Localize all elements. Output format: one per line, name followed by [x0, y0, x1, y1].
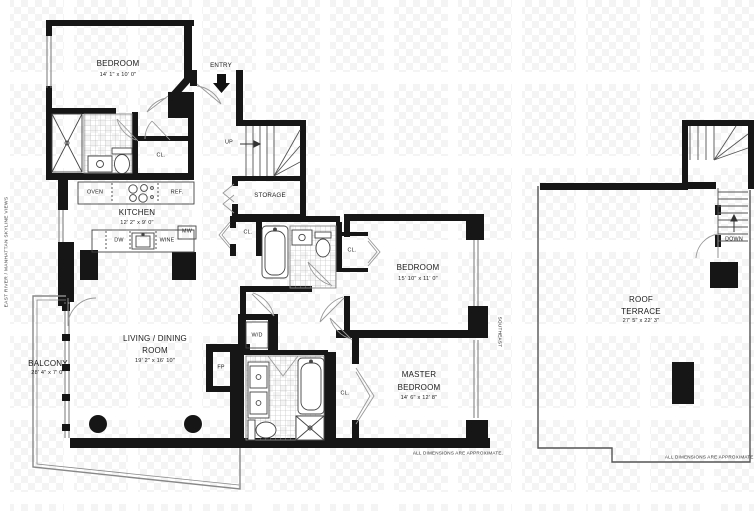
toilet-icon	[248, 420, 276, 440]
living-dining-dims: 19' 2" x 16' 10"	[135, 359, 175, 365]
southeast-label: SOUTHEAST	[497, 317, 502, 348]
entry-label: ENTRY	[210, 63, 232, 69]
fireplace-label: FP	[217, 365, 224, 370]
storage-label: STORAGE	[254, 193, 286, 199]
floor-plan: BEDROOM 14' 1" x 10' 0" ENTRY UP STORAGE…	[0, 0, 754, 511]
kitchen-label: KITCHEN	[119, 209, 156, 217]
bedroom-middle-label: BEDROOM	[397, 264, 440, 272]
chimney-block	[672, 362, 694, 404]
toilet-icon	[315, 232, 331, 257]
entry-arrow-icon	[213, 74, 230, 93]
dimensions-note-main: ALL DIMENSIONS ARE APPROXIMATE.	[413, 452, 503, 457]
master-bedroom-label-2: BEDROOM	[398, 384, 441, 392]
bathtub-icon	[262, 226, 288, 278]
column-dot	[184, 415, 202, 433]
dimensions-note-terrace: ALL DIMENSIONS ARE APPROXIMATE.	[665, 456, 754, 461]
bedroom-middle-dims: 15' 10" x 11' 0"	[398, 277, 438, 283]
roof-terrace	[538, 120, 754, 462]
roof-terrace-label-2: TERRACE	[621, 308, 661, 316]
closet-label: CL.	[348, 248, 357, 253]
bedroom-top-label: BEDROOM	[97, 60, 140, 68]
up-arrow-icon	[240, 141, 260, 147]
closet-label: CL.	[341, 391, 350, 396]
shower-icon	[52, 114, 82, 172]
stove-burners-icon	[129, 185, 154, 203]
roof-terrace-dims: 27' 5" x 22' 3"	[623, 319, 660, 325]
balcony-dims: 28' 4" x 7' 0"	[31, 371, 64, 377]
master-bath	[246, 322, 324, 440]
refrigerator-label: REF.	[171, 190, 183, 195]
balcony-label: BALCONY	[28, 360, 68, 368]
oven-label: OVEN	[87, 190, 103, 195]
shower-icon	[296, 416, 324, 440]
down-label: DOWN	[725, 237, 743, 242]
closet-label: CL.	[244, 230, 253, 235]
bedroom-top-dims: 14' 1" x 10' 0"	[100, 73, 137, 79]
balcony-railing	[33, 296, 240, 489]
microwave-label: MW	[182, 229, 192, 234]
master-bedroom-label-1: MASTER	[402, 371, 437, 379]
roof-terrace-label-1: ROOF	[629, 296, 653, 304]
living-dining-label-2: ROOM	[142, 347, 168, 355]
column-dot	[89, 415, 107, 433]
bathroom-1	[52, 114, 132, 174]
kitchen-sink-icon	[132, 233, 154, 249]
living-dining-label-1: LIVING / DINING	[123, 335, 187, 343]
down-arrow-icon	[731, 215, 737, 232]
sink-icon	[292, 230, 312, 245]
closet-label: CL.	[157, 153, 166, 158]
up-label: UP	[225, 140, 233, 145]
stairs-up	[246, 126, 300, 176]
dishwasher-label: DW	[114, 238, 123, 243]
bathroom-2	[262, 226, 336, 288]
bathtub-icon	[298, 358, 324, 414]
left-views-note: EAST RIVER / MANHATTAN SKYLINE VIEWS	[6, 197, 11, 308]
double-sink-icon	[248, 362, 269, 418]
wine-label: WINE	[160, 238, 175, 243]
kitchen-dims: 12' 2" x 9' 0"	[120, 221, 153, 227]
washer-dryer-label: W/D	[251, 333, 262, 338]
master-bedroom-dims: 14' 6" x 12' 8"	[401, 396, 438, 402]
sink-icon	[88, 156, 112, 172]
